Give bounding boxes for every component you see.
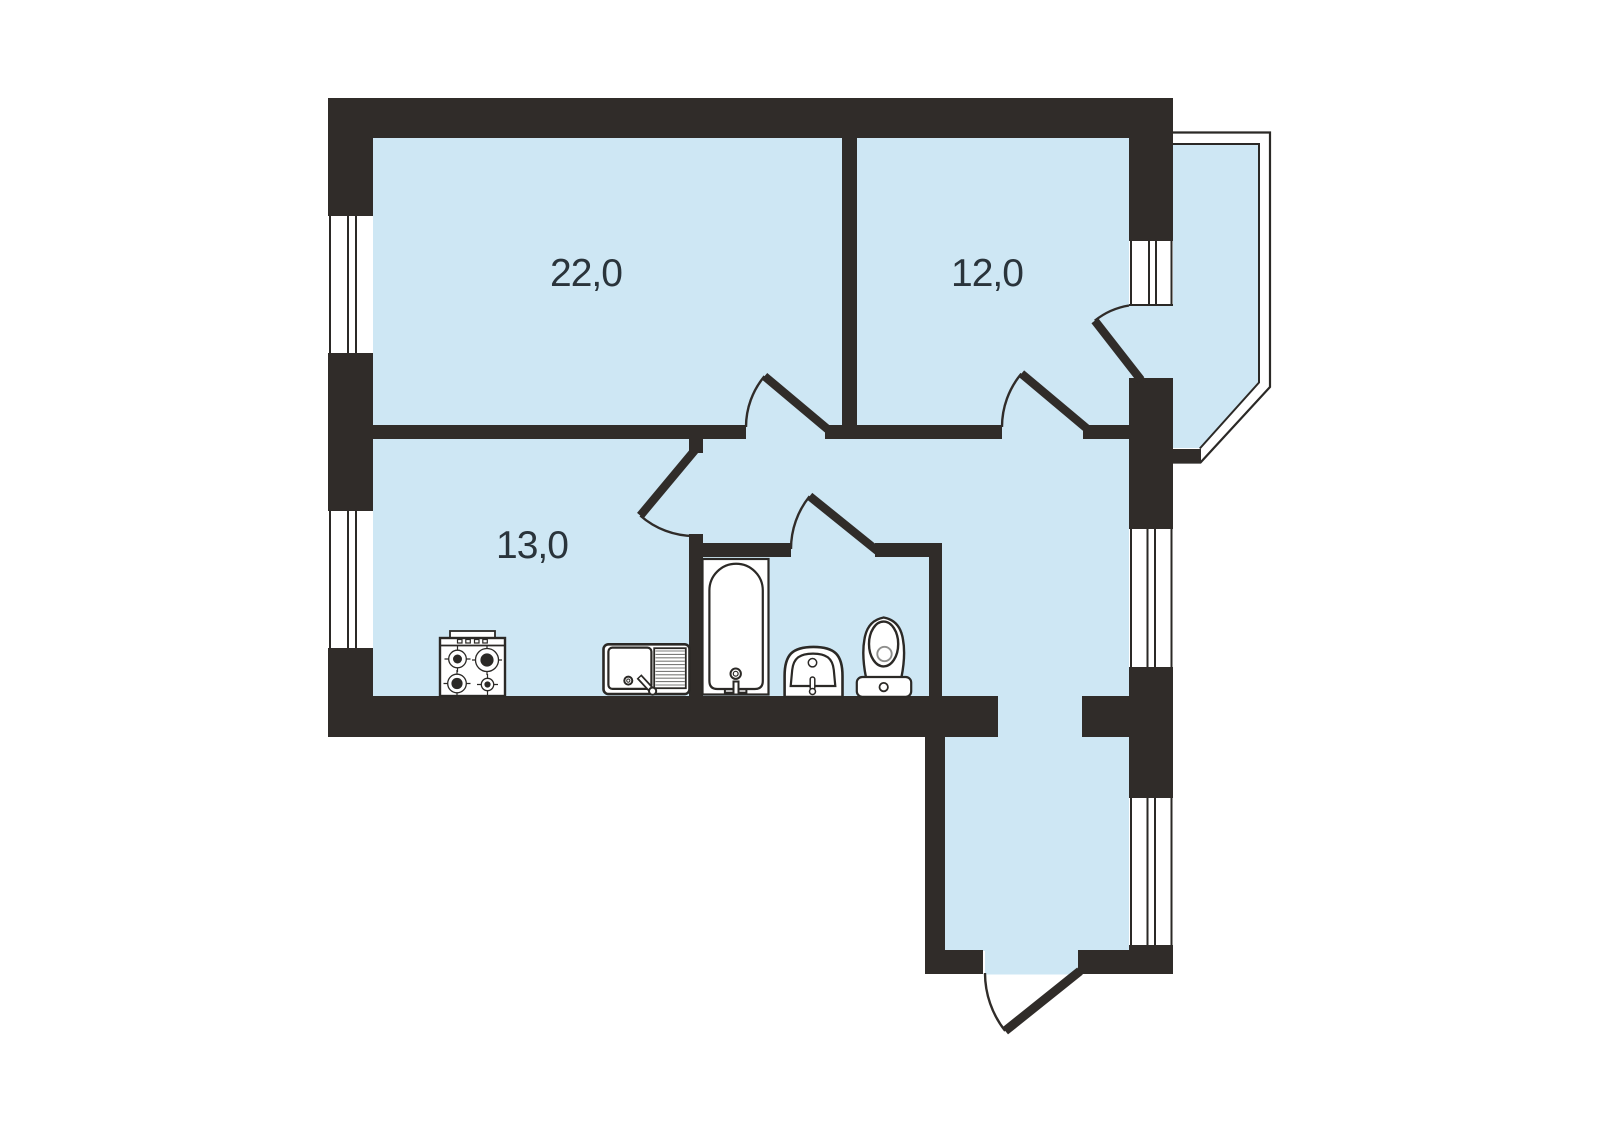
svg-text:13,0: 13,0 <box>496 524 568 567</box>
svg-text:22,0: 22,0 <box>550 252 622 295</box>
svg-text:12,0: 12,0 <box>951 252 1023 295</box>
